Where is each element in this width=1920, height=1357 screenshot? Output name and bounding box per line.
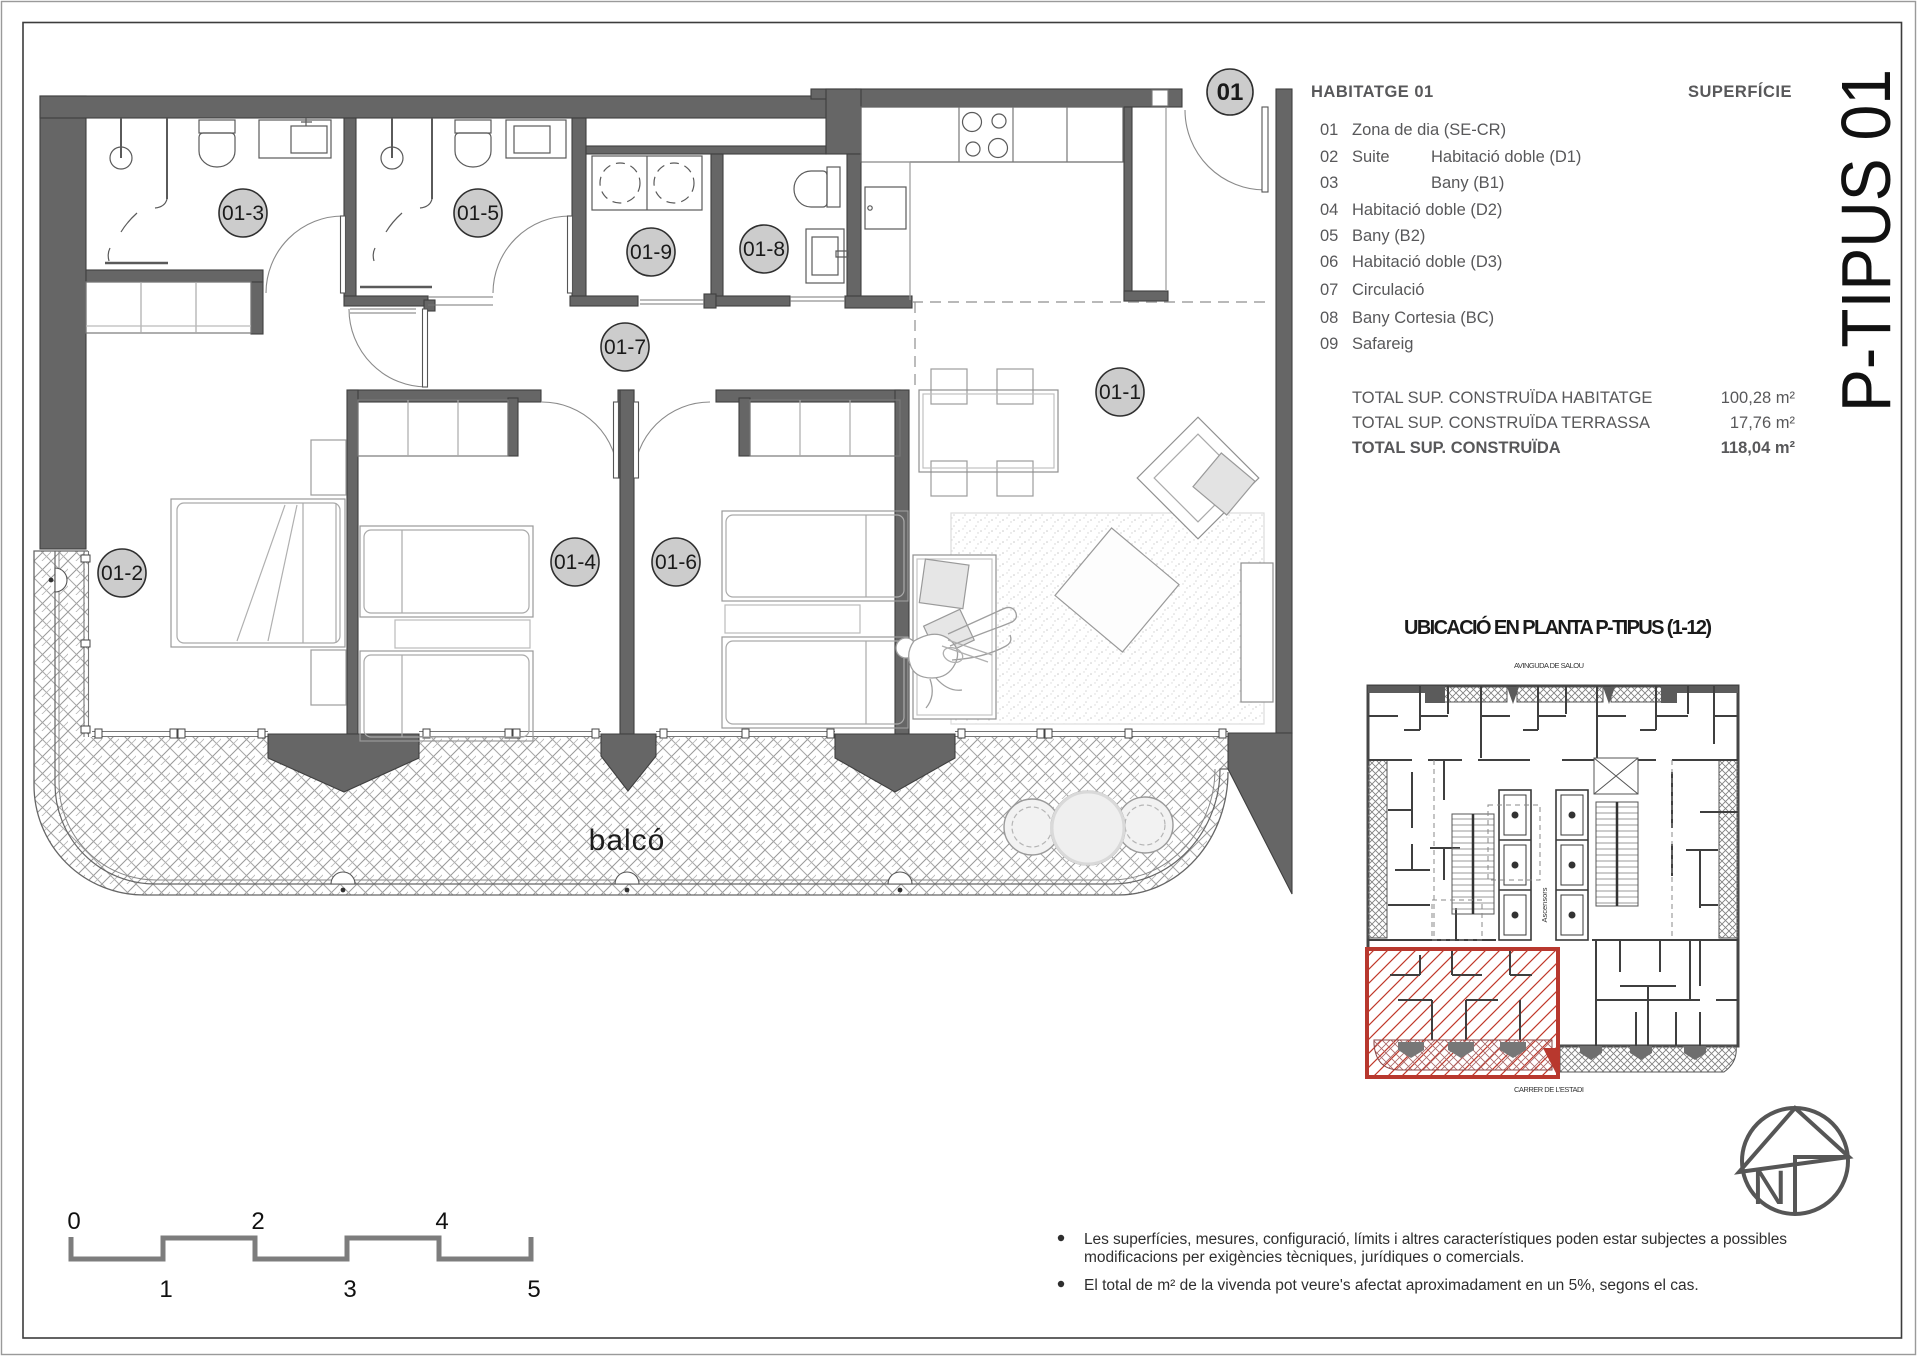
svg-text:AVINGUDA DE SALOU: AVINGUDA DE SALOU bbox=[1514, 661, 1584, 670]
svg-text:01-6: 01-6 bbox=[655, 551, 697, 574]
svg-text:0: 0 bbox=[67, 1208, 80, 1235]
svg-text:118,04 m²: 118,04 m² bbox=[1721, 439, 1796, 457]
svg-text:01: 01 bbox=[1320, 121, 1338, 139]
svg-text:SUPERFÍCIE: SUPERFÍCIE bbox=[1688, 82, 1792, 101]
svg-text:Bany (B2): Bany (B2) bbox=[1352, 227, 1425, 245]
svg-text:TOTAL SUP. CONSTRUÏDA: TOTAL SUP. CONSTRUÏDA bbox=[1352, 439, 1561, 457]
svg-text:HABITATGE 01: HABITATGE 01 bbox=[1311, 83, 1434, 101]
svg-text:04: 04 bbox=[1320, 201, 1338, 219]
svg-text:03: 03 bbox=[1320, 174, 1338, 192]
svg-text:Zona de dia (SE-CR): Zona de dia (SE-CR) bbox=[1352, 121, 1506, 139]
svg-text:100,28 m²: 100,28 m² bbox=[1721, 389, 1796, 407]
svg-text:1: 1 bbox=[159, 1276, 172, 1303]
svg-text:01: 01 bbox=[1217, 79, 1244, 106]
svg-text:4: 4 bbox=[435, 1208, 448, 1235]
svg-text:Suite: Suite bbox=[1352, 148, 1390, 166]
svg-text:05: 05 bbox=[1320, 227, 1338, 245]
svg-text:N: N bbox=[1752, 1162, 1787, 1215]
svg-text:3: 3 bbox=[343, 1276, 356, 1303]
svg-text:01-5: 01-5 bbox=[457, 202, 499, 225]
svg-text:P-TIPUS 01: P-TIPUS 01 bbox=[1827, 69, 1905, 412]
svg-text:Les superfícies, mesures, conf: Les superfícies, mesures, configuració, … bbox=[1084, 1231, 1787, 1248]
svg-text:06: 06 bbox=[1320, 253, 1338, 271]
svg-text:01-8: 01-8 bbox=[743, 238, 785, 261]
svg-text:01-7: 01-7 bbox=[604, 336, 646, 359]
svg-text:08: 08 bbox=[1320, 309, 1338, 327]
svg-text:01-3: 01-3 bbox=[222, 202, 264, 225]
svg-text:Habitació doble (D2): Habitació doble (D2) bbox=[1352, 201, 1502, 219]
svg-text:02: 02 bbox=[1320, 148, 1338, 166]
svg-text:UBICACIÓ EN PLANTA P-TIPUS (1-: UBICACIÓ EN PLANTA P-TIPUS (1-12) bbox=[1404, 615, 1712, 639]
svg-text:Safareig: Safareig bbox=[1352, 335, 1413, 353]
svg-text:Habitació doble (D1): Habitació doble (D1) bbox=[1431, 148, 1581, 166]
svg-text:TOTAL SUP. CONSTRUÏDA HABITATG: TOTAL SUP. CONSTRUÏDA HABITATGE bbox=[1352, 389, 1652, 407]
svg-text:17,76 m²: 17,76 m² bbox=[1730, 414, 1796, 432]
svg-text:01-1: 01-1 bbox=[1099, 381, 1141, 404]
svg-text:01-2: 01-2 bbox=[101, 562, 143, 585]
svg-text:CARRER DE L'ESTADI: CARRER DE L'ESTADI bbox=[1514, 1085, 1584, 1094]
svg-text:Habitació doble (D3): Habitació doble (D3) bbox=[1352, 253, 1502, 271]
svg-text:Bany (B1): Bany (B1) bbox=[1431, 174, 1504, 192]
svg-text:Ascensors: Ascensors bbox=[1540, 887, 1549, 922]
svg-text:09: 09 bbox=[1320, 335, 1338, 353]
svg-text:Circulació: Circulació bbox=[1352, 281, 1424, 299]
svg-text:El total de m² de la vivenda p: El total de m² de la vivenda pot veure's… bbox=[1084, 1277, 1699, 1294]
svg-text:balcó: balcó bbox=[589, 824, 666, 857]
svg-text:TOTAL SUP. CONSTRUÏDA TERRASSA: TOTAL SUP. CONSTRUÏDA TERRASSA bbox=[1352, 414, 1650, 432]
svg-text:01-9: 01-9 bbox=[630, 241, 672, 264]
svg-text:5: 5 bbox=[527, 1276, 540, 1303]
svg-text:Bany Cortesia (BC): Bany Cortesia (BC) bbox=[1352, 309, 1494, 327]
svg-text:modificacions per exigències t: modificacions per exigències tècniques, … bbox=[1084, 1249, 1524, 1266]
svg-text:2: 2 bbox=[251, 1208, 264, 1235]
svg-text:01-4: 01-4 bbox=[554, 551, 596, 574]
svg-text:07: 07 bbox=[1320, 281, 1338, 299]
